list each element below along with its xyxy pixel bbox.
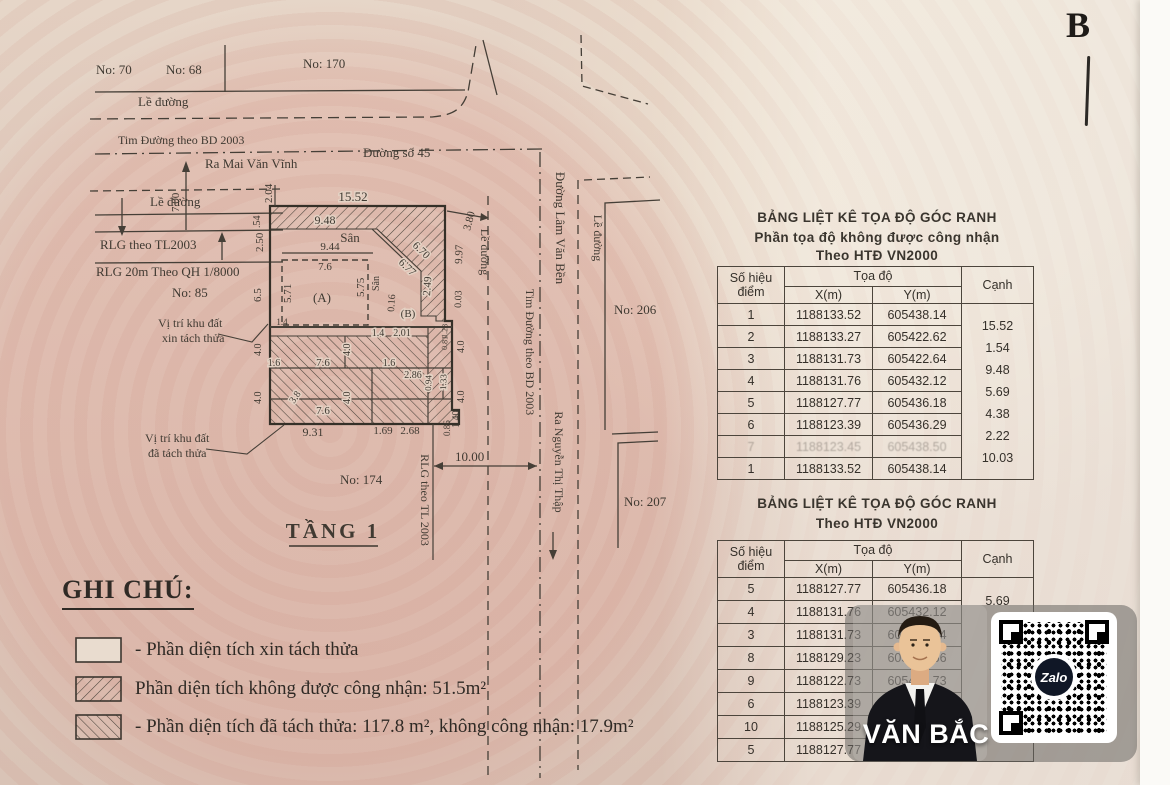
right-street-lines bbox=[488, 35, 660, 778]
dim-9-48: 9.48 bbox=[315, 213, 336, 227]
callout-da-1: Vị trí khu đất bbox=[145, 431, 210, 445]
dim-1-69: 1.69 bbox=[373, 425, 393, 437]
qr-finder-tl bbox=[999, 620, 1023, 644]
dim-4-0-r2: 4.0 bbox=[456, 391, 467, 404]
callout-da-2: đã tách thửa bbox=[148, 446, 207, 460]
dim-1-4-b: 1.4 bbox=[372, 328, 385, 339]
zalo-qr-code: Zalo bbox=[991, 612, 1117, 743]
road-axis-label: Tim Đường theo BD 2003 bbox=[118, 133, 244, 147]
legend-item-1-text: - Phần diện tích xin tách thửa bbox=[135, 639, 358, 661]
dim-2-68: 2.68 bbox=[400, 425, 420, 437]
dim-2-04: 2.04 bbox=[263, 183, 275, 203]
plot-no-174: No: 174 bbox=[340, 472, 383, 487]
legend-swatch-plain bbox=[75, 637, 122, 663]
dim-15-52: 15.52 bbox=[338, 189, 367, 204]
dim-7-6-c: 7.6 bbox=[316, 405, 330, 417]
lam-van-ben-label: Đường Lâm Văn Bền bbox=[553, 172, 568, 285]
dim-1-33: 1.33 bbox=[438, 373, 449, 390]
dim-4-0-m1: 4.0 bbox=[342, 344, 353, 357]
corner-letter: B bbox=[1066, 4, 1090, 46]
plot-no-85: No: 85 bbox=[172, 285, 208, 300]
unit-a-label: (A) bbox=[313, 290, 331, 305]
table2-col-point: Số hiệuđiểm bbox=[718, 541, 785, 578]
table2-col-side: Cạnh bbox=[962, 541, 1034, 578]
side-value: 1.54 bbox=[962, 339, 1033, 357]
legend-item-2: Phần diện tích không được công nhận: 51.… bbox=[75, 676, 486, 702]
zalo-logo: Zalo bbox=[1035, 658, 1073, 696]
dim-2-50: 2.50 bbox=[254, 232, 266, 252]
sidewalk-label-1: Lề đường bbox=[138, 94, 189, 109]
dim-3-80: 3.80 bbox=[461, 210, 478, 232]
scanned-cadastral-page: No: 70 No: 68 No: 170 Lề đường Tim Đường… bbox=[0, 0, 1170, 785]
rlg-tl2003-label: RLG theo TL2003 bbox=[100, 237, 197, 252]
rlg-20m-label: RLG 20m Theo QH 1/8000 bbox=[96, 264, 239, 279]
plot-no-170: No: 170 bbox=[303, 56, 345, 71]
dim-6-5: 6.5 bbox=[252, 288, 264, 302]
dim-5-75: 5.75 bbox=[355, 277, 367, 297]
dim-1-40: 1.40 bbox=[451, 411, 462, 429]
hatch-not-recognized-region bbox=[270, 206, 445, 321]
page-edge bbox=[1140, 0, 1170, 785]
dim-4-0-l2: 4.0 bbox=[253, 392, 264, 405]
agent-name: VĂN BẮC bbox=[845, 719, 1007, 750]
floor-title: TẦNG 1 bbox=[286, 519, 380, 543]
dim-4-0-l1: 4.0 bbox=[253, 344, 264, 357]
side-value: 4.38 bbox=[962, 405, 1033, 423]
dim-9-97: 9.97 bbox=[453, 244, 466, 264]
san-label-1: Sân bbox=[340, 230, 360, 245]
callout-xin-1: Vị trí khu đất bbox=[158, 316, 223, 330]
survey-drawing: No: 70 No: 68 No: 170 Lề đường Tim Đường… bbox=[0, 0, 740, 785]
contact-overlay-card: VĂN BẮC Zalo bbox=[845, 605, 1137, 762]
dim-9-31: 9.31 bbox=[303, 425, 324, 439]
sidewalk-label-3: Lề đường bbox=[478, 229, 492, 276]
table1-col-point: Số hiệuđiểm bbox=[718, 267, 785, 304]
plot-no-206: No: 206 bbox=[614, 302, 657, 317]
legend-item-1: - Phần diện tích xin tách thửa bbox=[75, 637, 358, 663]
dim-2-49: 2.49 bbox=[421, 276, 434, 297]
legend-item-3: - Phần diện tích đã tách thửa: 117.8 m²,… bbox=[75, 714, 634, 740]
table-row: 11188133.52605438.14 15.52 1.54 9.48 5.6… bbox=[718, 304, 1034, 326]
table1-col-coord: Tọa độ bbox=[785, 267, 962, 287]
dim-1-6-b: 1.6 bbox=[383, 358, 396, 369]
legend-title: GHI CHÚ: bbox=[62, 575, 194, 610]
legend: GHI CHÚ: - Phần diện tích xin tách thửa … bbox=[62, 575, 702, 610]
dim-054: .54 bbox=[252, 216, 263, 229]
table1-col-y: Y(m) bbox=[873, 286, 962, 303]
to-nguyen-thi-thap: Ra Nguyễn Thị Thập bbox=[552, 411, 566, 512]
dim-5-71: 5.71 bbox=[282, 284, 294, 303]
dim-0-16: 0.16 bbox=[386, 294, 398, 312]
plot-no-68: No: 68 bbox=[166, 62, 202, 77]
legend-item-3-text: - Phần diện tích đã tách thửa: 117.8 m²,… bbox=[135, 716, 634, 738]
table1-title-1: BẢNG LIỆT KÊ TỌA ĐỘ GÓC RANH bbox=[712, 210, 1042, 225]
callout-xin-2: xin tách thửa bbox=[162, 331, 225, 345]
dim-2-86: 2.86 bbox=[404, 370, 422, 381]
plot-no-70: No: 70 bbox=[96, 62, 132, 77]
table1-side-column: 15.52 1.54 9.48 5.69 4.38 2.22 10.03 bbox=[962, 304, 1034, 480]
coordinate-table-1: Số hiệuđiểm Tọa độ Cạnh X(m) Y(m) 111881… bbox=[717, 266, 1034, 480]
side-value: 2.22 bbox=[962, 427, 1033, 445]
side-value: 5.69 bbox=[962, 383, 1033, 401]
table2-title-1: BẢNG LIỆT KÊ TỌA ĐỘ GÓC RANH bbox=[712, 496, 1042, 511]
qr-finder-tr bbox=[1085, 620, 1109, 644]
table2-col-x: X(m) bbox=[785, 560, 873, 577]
table2-col-coord: Tọa độ bbox=[785, 541, 962, 561]
to-mai-van-vinh: Ra Mai Văn Vĩnh bbox=[205, 156, 298, 171]
dim-1-6-a: 1.6 bbox=[268, 358, 281, 369]
sidewalk-label-2: Lề đường bbox=[150, 194, 201, 209]
dim-7-6-a: 7.6 bbox=[318, 261, 332, 273]
plot-no-207: No: 207 bbox=[624, 494, 667, 509]
rlg-vertical-label: RLG theo TL 2003 bbox=[418, 454, 432, 546]
unit-b-label: (B) bbox=[401, 308, 416, 320]
road-axis-vertical-label: Tim Đường theo BD 2003 bbox=[523, 289, 537, 415]
side-value: 9.48 bbox=[962, 361, 1033, 379]
dim-10-00: 10.00 bbox=[455, 449, 484, 464]
table2-title-2: Theo HTĐ VN2000 bbox=[712, 516, 1042, 531]
dim-4-0-m2: 4.0 bbox=[342, 392, 353, 405]
table1-title-2: Phần tọa độ không được công nhận bbox=[712, 230, 1042, 245]
table-row: 51188127.77605436.18 5.69 bbox=[718, 578, 1034, 601]
dim-0-94: 0.94 bbox=[423, 374, 434, 391]
table1-col-side: Cạnh bbox=[962, 267, 1034, 304]
table1-title-3: Theo HTĐ VN2000 bbox=[712, 248, 1042, 263]
dim-0-81: 0.81 bbox=[440, 336, 449, 350]
street-45-label: Đường số 45 bbox=[363, 145, 430, 160]
table2-col-y: Y(m) bbox=[873, 560, 962, 577]
qr-finder-bl bbox=[999, 711, 1023, 735]
dim-2-01: 2.01 bbox=[393, 328, 411, 339]
sidewalk-label-4: Lề đường bbox=[591, 215, 605, 262]
side-value: 10.03 bbox=[962, 449, 1033, 467]
san-label-2: Sân bbox=[371, 276, 382, 291]
dim-1-4-a: 1.4 bbox=[276, 317, 288, 327]
dim-4-0-r1: 4.0 bbox=[456, 341, 467, 354]
table1-col-x: X(m) bbox=[785, 286, 873, 303]
dim-0-03: 0.03 bbox=[453, 290, 465, 308]
dim-7-6-b: 7.6 bbox=[316, 357, 330, 369]
dim-9-44: 9.44 bbox=[320, 241, 340, 253]
legend-item-2-text: Phần diện tích không được công nhận: 51.… bbox=[135, 678, 486, 700]
legend-swatch-hatch-fwd bbox=[75, 676, 122, 702]
side-value: 15.52 bbox=[962, 317, 1033, 335]
legend-swatch-hatch-back bbox=[75, 714, 122, 740]
